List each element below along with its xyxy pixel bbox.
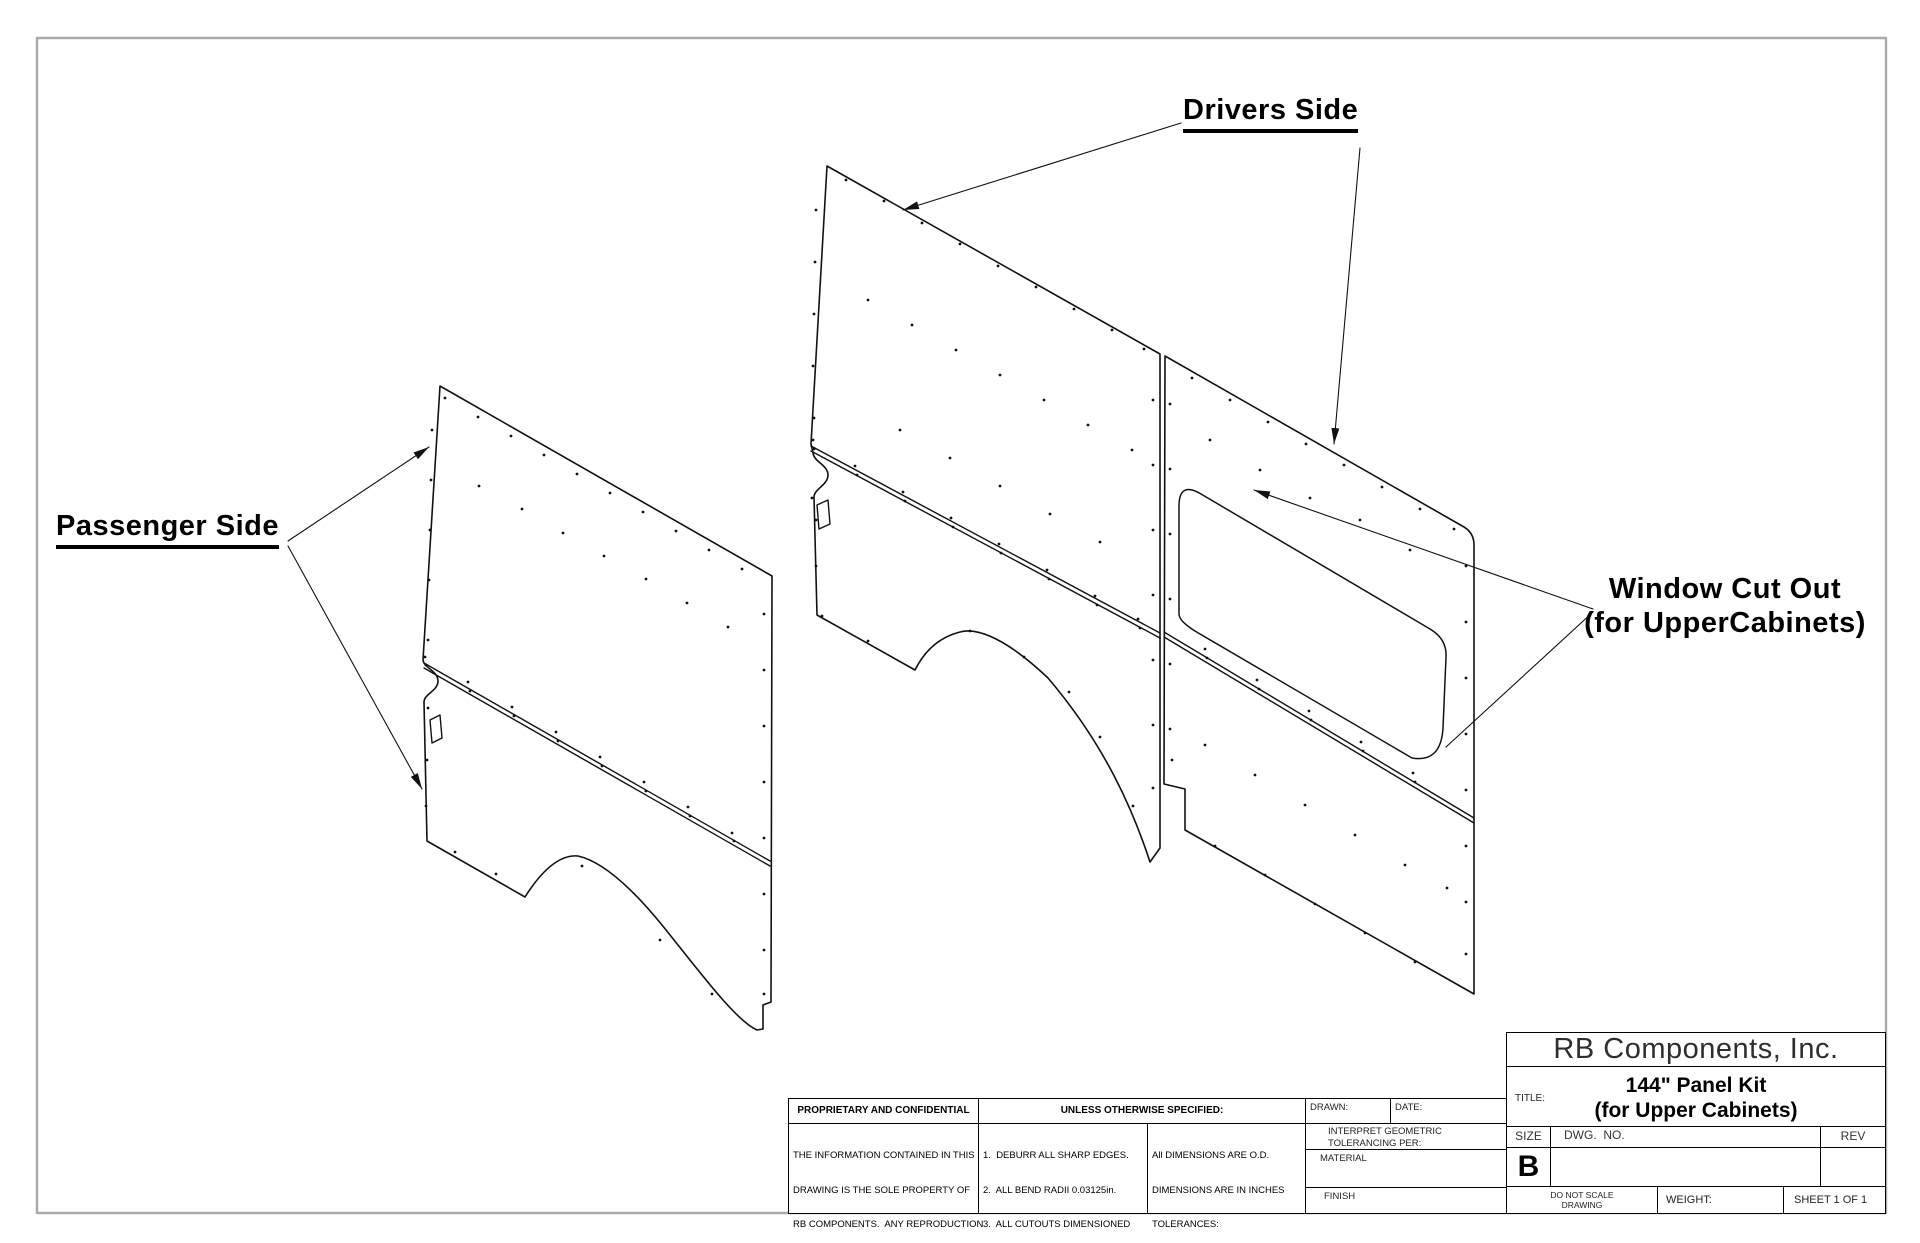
material-field: MATERIAL <box>1305 1149 1507 1188</box>
drivers-front-panel-seam <box>811 446 1160 638</box>
drivers-leader-left <box>903 123 1181 210</box>
drawn-field: DRAWN: <box>1305 1098 1391 1124</box>
size-value: B <box>1506 1147 1551 1187</box>
window-leader-upper <box>1254 490 1593 609</box>
drivers-rear-panel-outline <box>1164 356 1474 994</box>
passenger-leader-lower <box>288 546 422 789</box>
drawing-title-line2: (for Upper Cabinets) <box>1507 1098 1885 1123</box>
drawing-sheet: Passenger Side Drivers Side Window Cut O… <box>0 0 1920 1243</box>
drivers-side-label: Drivers Side <box>1183 94 1358 133</box>
window-cutout-outline <box>1179 490 1446 759</box>
dwg-no-label: DWG. NO. <box>1550 1126 1821 1148</box>
passenger-side-label-text: Passenger Side <box>56 510 279 549</box>
passenger-panel-hole <box>430 715 442 743</box>
date-field: DATE: <box>1390 1098 1507 1124</box>
passenger-panel <box>423 386 772 1030</box>
uos-list: 1. DEBURR ALL SHARP EDGES. 2. ALL BEND R… <box>978 1123 1148 1214</box>
passenger-panel-seam <box>424 663 770 866</box>
uos-header: UNLESS OTHERWISE SPECIFIED: <box>978 1098 1306 1124</box>
company-name: RB Components, Inc. <box>1506 1032 1886 1067</box>
proprietary-body: THE INFORMATION CONTAINED IN THIS DRAWIN… <box>788 1123 979 1214</box>
passenger-leader-upper <box>288 447 429 541</box>
title-label: TITLE: <box>1515 1093 1545 1105</box>
window-cutout-label-line1: Window Cut Out <box>1565 572 1885 606</box>
passenger-side-label: Passenger Side <box>56 510 279 549</box>
do-not-scale-note: DO NOT SCALE DRAWING <box>1506 1186 1658 1214</box>
window-cutout-label-line2: (for UpperCabinets) <box>1565 606 1885 640</box>
leader-lines <box>288 123 1593 789</box>
proprietary-header: PROPRIETARY AND CONFIDENTIAL <box>788 1098 979 1124</box>
rev-label: REV <box>1820 1126 1886 1148</box>
drawing-title-line1: 144" Panel Kit <box>1507 1073 1885 1098</box>
passenger-rivet-dots <box>424 397 766 996</box>
drivers-front-panel-hole <box>817 500 830 529</box>
drivers-front-panel-outline <box>811 166 1160 862</box>
finish-field: FINISH <box>1305 1187 1507 1214</box>
drivers-panel <box>811 166 1474 994</box>
passenger-panel-outline <box>423 386 772 1030</box>
weight-field: WEIGHT: <box>1657 1186 1784 1214</box>
tolerances-block: All DIMENSIONS ARE O.D. DIMENSIONS ARE I… <box>1147 1123 1306 1214</box>
interpret-field: INTERPRET GEOMETRIC TOLERANCING PER: <box>1305 1123 1507 1150</box>
drivers-side-label-text: Drivers Side <box>1183 94 1358 133</box>
drivers-rear-panel-seam <box>1164 632 1474 823</box>
drivers-leader-down <box>1334 148 1360 444</box>
drivers-rivet-dots <box>811 179 1468 964</box>
sheet-field: SHEET 1 OF 1 <box>1783 1186 1886 1214</box>
title-field: TITLE: 144" Panel Kit (for Upper Cabinet… <box>1506 1066 1886 1127</box>
dwg-no-value <box>1550 1147 1821 1187</box>
window-cutout-label: Window Cut Out (for UpperCabinets) <box>1565 572 1885 640</box>
rev-value <box>1820 1147 1886 1187</box>
size-label: SIZE <box>1506 1126 1551 1148</box>
